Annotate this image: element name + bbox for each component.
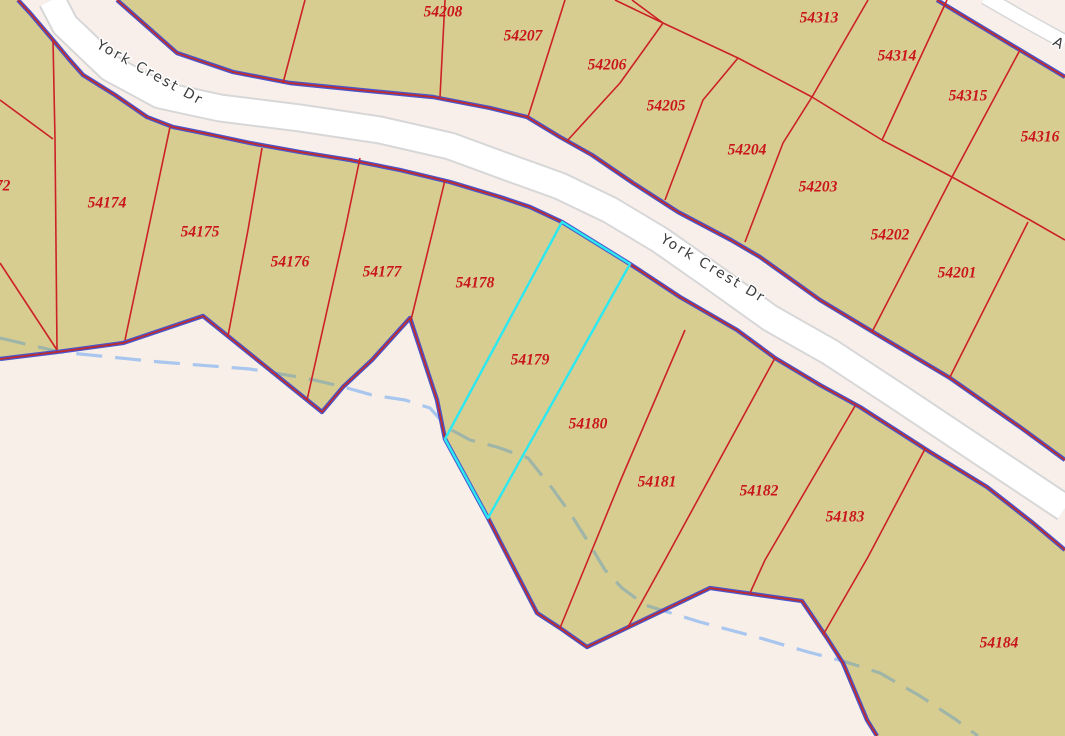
parcel-label-54206: 54206 [588,57,627,74]
parcel-label-54316: 54316 [1021,129,1060,146]
parcel-label-54175: 54175 [181,224,220,241]
parcel-label-54314: 54314 [878,48,917,65]
parcel-label-54179: 54179 [511,352,550,369]
parcel-label-54209: 54209 [333,0,372,4]
parcel-label-54313: 54313 [800,10,839,27]
parcel-label-54176: 54176 [271,254,310,271]
parcel-label-54204: 54204 [728,142,767,159]
parcel-label-54207: 54207 [504,28,544,45]
parcel-label-54208: 54208 [424,4,463,21]
parcel-label-54177: 54177 [363,264,403,281]
parcel-label-54181: 54181 [638,474,677,491]
parcel-label-54174: 54174 [88,195,127,212]
parcel-label-54178: 54178 [456,275,495,292]
map-viewport[interactable]: 5417254174541755417654177541785417954180… [0,0,1065,736]
parcel-label-54172: 54172 [0,178,11,195]
parcel-label-54184: 54184 [980,635,1019,652]
parcel-label-54182: 54182 [740,483,779,500]
parcel-label-54180: 54180 [569,416,608,433]
parcel-label-54315: 54315 [949,88,988,105]
parcel-label-54183: 54183 [826,509,865,526]
parcel-label-54203: 54203 [799,179,838,196]
parcel-map[interactable]: 5417254174541755417654177541785417954180… [0,0,1065,736]
parcel-label-54201: 54201 [938,265,977,282]
parcel-label-54205: 54205 [647,98,686,115]
parcel-label-54202: 54202 [871,227,910,244]
